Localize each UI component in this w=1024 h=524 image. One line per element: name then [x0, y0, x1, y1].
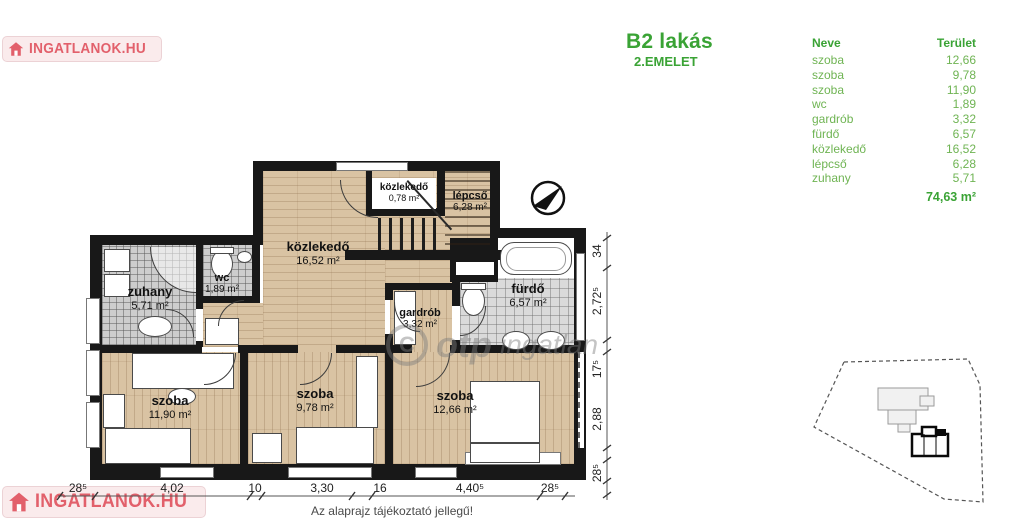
row-area: 3,32 [953, 112, 976, 127]
room-label-kozlekedo: közlekedő 16,52 m² [273, 240, 363, 267]
toilet-tank [210, 247, 234, 254]
room-label-furdo: fürdő 6,57 m² [483, 282, 573, 309]
table-row: lépcső6,28 [812, 157, 976, 172]
row-name: szoba [812, 68, 844, 83]
dim-label: 10 [230, 481, 280, 495]
area-table-header: Neve Terület [812, 36, 976, 51]
window [86, 402, 100, 448]
dim-label: 28⁵ [53, 481, 103, 495]
row-area: 11,90 [947, 83, 976, 98]
table-row: fürdő6,57 [812, 127, 976, 142]
wall [97, 345, 202, 353]
table-row: gardrób3,32 [812, 112, 976, 127]
table-row: wc1,89 [812, 97, 976, 112]
house-icon [8, 41, 24, 57]
site-plan [802, 348, 1014, 510]
north-arrow-icon [526, 176, 570, 220]
dim-label: 28⁵ [590, 451, 604, 495]
bed [105, 428, 191, 464]
row-area: 6,57 [953, 127, 976, 142]
col-name: Neve [812, 36, 841, 51]
window [160, 467, 214, 478]
dim-label: 4,02 [147, 481, 197, 495]
row-area: 16,52 [946, 142, 976, 157]
wall [252, 243, 260, 303]
wall [253, 161, 263, 245]
wall-niche [456, 262, 494, 275]
table-row: szoba9,78 [812, 68, 976, 83]
stair-railing [378, 218, 442, 250]
window [415, 467, 457, 478]
washbasin [237, 251, 252, 263]
wall [385, 283, 452, 290]
bed-bench [470, 443, 540, 463]
dim-label: 34 [590, 229, 604, 273]
room-label-szoba-2: szoba 9,78 m² [270, 387, 360, 414]
row-area: 6,28 [953, 157, 976, 172]
house-icon [8, 491, 30, 513]
table-row: szoba12,66 [812, 53, 976, 68]
row-name: gardrób [812, 112, 853, 127]
otp-watermark: C otp ingatlan [386, 324, 598, 366]
dim-label: 4,40⁵ [445, 481, 495, 495]
table-row: közlekedő16,52 [812, 142, 976, 157]
dim-label: 28⁵ [525, 481, 575, 495]
row-area: 12,66 [946, 53, 976, 68]
row-area: 1,89 [953, 97, 976, 112]
dim-label: 2,88 [590, 397, 604, 441]
room-label-szoba-1: szoba 11,90 m² [125, 394, 215, 421]
col-area: Terület [937, 36, 976, 51]
table-row: szoba11,90 [812, 83, 976, 98]
wall [90, 235, 263, 245]
table-row: zuhany5,71 [812, 171, 976, 186]
wall [385, 352, 393, 464]
table [252, 433, 282, 463]
room-label-wc: wc 1,89 m² [192, 272, 252, 296]
bathtub-inner [506, 247, 566, 271]
wall [240, 352, 248, 464]
dim-label: 2,72⁵ [590, 279, 604, 323]
wall [452, 282, 460, 306]
wall [345, 250, 502, 260]
room-label-lepcso: lépcső 6,28 m² [432, 190, 508, 214]
room-label-zuhany: zuhany 5,71 m² [105, 285, 195, 312]
page-subtitle: 2.EMELET [634, 54, 698, 69]
row-name: szoba [812, 53, 844, 68]
window [86, 298, 100, 344]
window [288, 467, 372, 478]
row-name: lépcső [812, 157, 847, 172]
window [86, 350, 100, 396]
table-total: 74,63 m² [812, 190, 976, 204]
washing-machine [104, 249, 130, 272]
row-name: közlekedő [812, 142, 866, 157]
room-label-szoba-3: szoba 12,66 m² [410, 389, 500, 416]
dim-label: 3,30 [297, 481, 347, 495]
area-table: Neve Terület szoba12,66 szoba9,78 szoba1… [812, 36, 976, 204]
row-name: zuhany [812, 171, 851, 186]
nightstand [103, 394, 125, 428]
floorplan-page: B2 lakás 2.EMELET Neve Terület szoba12,6… [0, 0, 1024, 524]
page-title: B2 lakás [626, 30, 713, 54]
row-name: szoba [812, 83, 844, 98]
row-area: 5,71 [953, 171, 976, 186]
railing-dashed [578, 352, 584, 448]
row-area: 9,78 [953, 68, 976, 83]
otp-logo-icon: C [386, 324, 428, 366]
row-name: wc [812, 97, 827, 112]
site-plan-highlight [936, 429, 946, 436]
dim-label: 16 [355, 481, 405, 495]
window [336, 162, 408, 171]
dim-label: 17⁵ [590, 347, 604, 391]
row-name: fürdő [812, 127, 839, 142]
floor-corridor-east [385, 258, 452, 285]
bed [296, 427, 374, 464]
ingatlanok-watermark-top: INGATLANOK.HU [2, 36, 162, 62]
wall [490, 228, 586, 238]
